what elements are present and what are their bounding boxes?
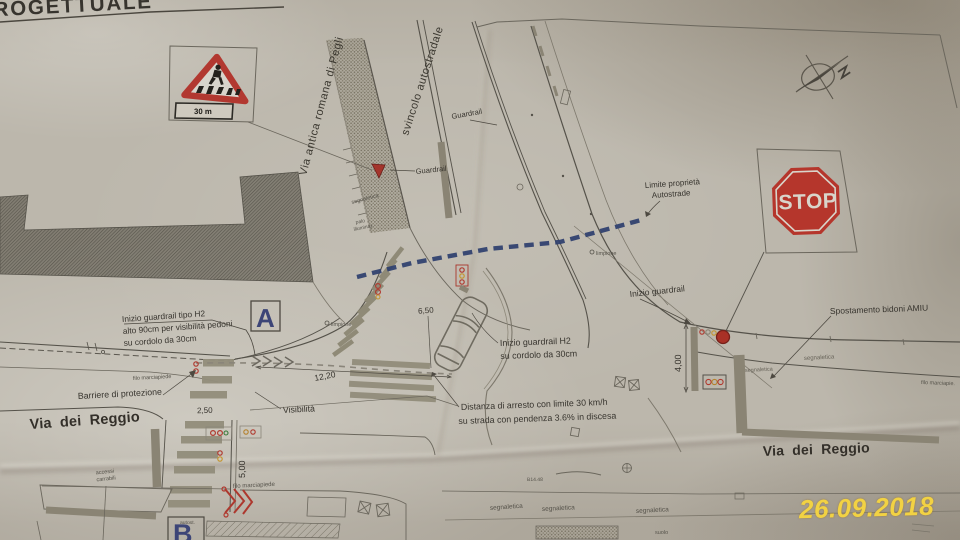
svg-text:filo marciapiede: filo marciapiede	[233, 481, 276, 490]
svg-text:Barriere di protezione: Barriere di protezione	[78, 387, 163, 401]
svg-text:autost.: autost.	[180, 520, 195, 526]
svg-text:12,20: 12,20	[313, 369, 336, 383]
svg-text:segnaletica: segnaletica	[490, 503, 524, 512]
svg-text:limpione: limpione	[331, 322, 351, 328]
svg-text:2,50: 2,50	[197, 406, 213, 416]
svg-text:filo marciapie.: filo marciapie.	[921, 380, 956, 387]
svg-text:Spostamento bidoni AMIU: Spostamento bidoni AMIU	[830, 303, 929, 316]
svg-text:B14.48: B14.48	[527, 477, 543, 483]
svg-text:Autostrade: Autostrade	[652, 188, 692, 200]
svg-text:segnaletica: segnaletica	[542, 504, 576, 513]
svg-text:Via dei Reggio: Via dei Reggio	[763, 439, 871, 459]
svg-text:Via dei Reggio: Via dei Reggio	[29, 409, 140, 433]
svg-text:Via antica romana di Pegli: Via antica romana di Pegli	[297, 35, 346, 176]
svg-text:su cordolo da 30cm: su cordolo da 30cm	[500, 348, 577, 361]
svg-text:limpione: limpione	[596, 251, 616, 257]
svg-text:segnaletica: segnaletica	[745, 366, 774, 373]
svg-text:Inizio guardrail H2: Inizio guardrail H2	[500, 336, 571, 348]
svg-text:segnaletica: segnaletica	[804, 353, 835, 362]
svg-text:A: A	[256, 303, 275, 333]
svg-text:5,00: 5,00	[237, 460, 247, 478]
svg-text:Distanza di arresto con limite: Distanza di arresto con limite 30 km/h	[461, 397, 608, 412]
svg-text:4,00: 4,00	[673, 354, 683, 372]
svg-text:carrabili: carrabili	[96, 475, 116, 483]
svg-text:Inizio guardrail: Inizio guardrail	[629, 283, 685, 299]
svg-text:6,50: 6,50	[418, 306, 435, 316]
svg-text:suolo: suolo	[655, 530, 668, 536]
svg-text:su strada con pendenza 3.6% in: su strada con pendenza 3.6% in discesa	[458, 411, 616, 427]
svg-text:STOP: STOP	[778, 189, 838, 214]
svg-text:segnaletica: segnaletica	[636, 506, 670, 515]
svg-text:ROGETTUALE: ROGETTUALE	[0, 0, 153, 21]
svg-text:Limite proprietà: Limite proprietà	[645, 177, 701, 190]
svg-text:30 m: 30 m	[194, 107, 212, 116]
svg-text:svincolo autostradale: svincolo autostradale	[399, 25, 446, 137]
svg-text:Guardrail: Guardrail	[451, 107, 483, 121]
svg-text:filo marciapiede: filo marciapiede	[133, 374, 172, 382]
